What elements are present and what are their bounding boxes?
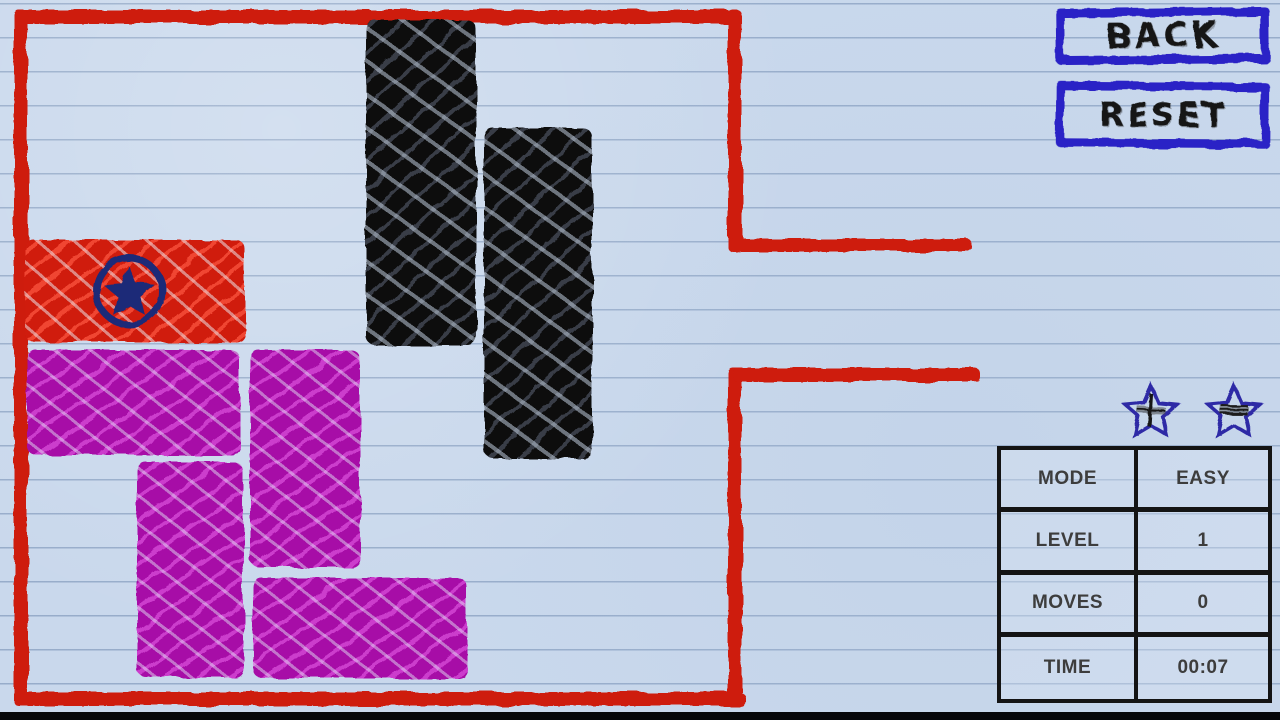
star-plus-icon [1120, 380, 1182, 442]
magenta-block-3[interactable] [137, 462, 243, 677]
magenta-block-1[interactable] [27, 350, 240, 455]
time-value: 00:07 [1138, 637, 1268, 699]
level-value: 1 [1138, 512, 1268, 574]
wall-right-lower [728, 368, 742, 706]
magenta-block-2[interactable] [250, 350, 360, 567]
back-button[interactable]: BACK [1056, 7, 1271, 65]
black-block-1[interactable] [366, 20, 476, 345]
wall-right-upper [728, 10, 742, 252]
stats-table: MODE EASY LEVEL 1 MOVES 0 TIME 00:07 [997, 446, 1272, 703]
game-screen: BACK RESET MODE EASY LEVEL 1 MOVES 0 TIM… [0, 0, 1280, 720]
black-block-2[interactable] [484, 128, 592, 458]
star-lines-icon [1203, 380, 1265, 442]
mode-label: MODE [1001, 450, 1138, 512]
exit-lane-top [728, 239, 972, 252]
level-label: LEVEL [1001, 512, 1138, 574]
wall-bottom [14, 692, 745, 706]
magenta-block-4[interactable] [253, 578, 467, 678]
target-block[interactable] [25, 240, 245, 342]
exit-lane-bottom [733, 368, 980, 382]
time-label: TIME [1001, 637, 1138, 699]
mode-value: EASY [1138, 450, 1268, 512]
reset-button[interactable]: RESET [1056, 81, 1270, 148]
circle-star-emblem [87, 249, 171, 333]
moves-label: MOVES [1001, 575, 1138, 637]
moves-value: 0 [1138, 575, 1268, 637]
wall-left [14, 10, 28, 706]
bottom-system-bar [0, 712, 1280, 720]
